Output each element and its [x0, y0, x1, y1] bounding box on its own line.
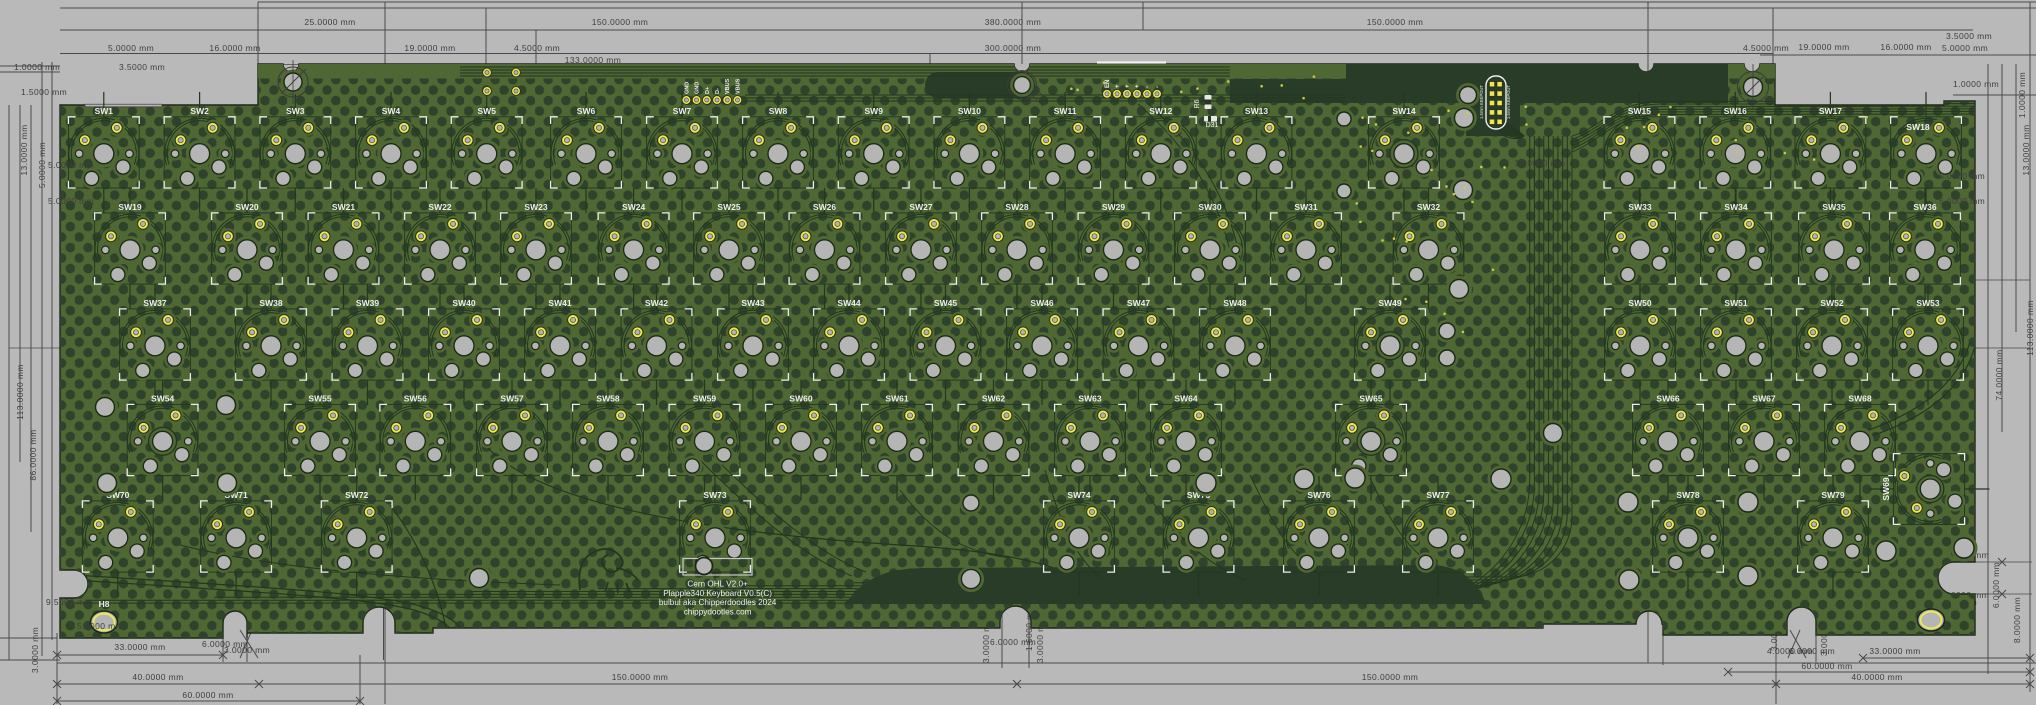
svg-text:1.5mm KEEPOUT: 1.5mm KEEPOUT — [1479, 85, 1484, 119]
svg-text:SW12: SW12 — [1149, 106, 1172, 116]
svg-text:13.0000 mm: 13.0000 mm — [19, 124, 29, 175]
svg-text:SW18: SW18 — [1906, 122, 1929, 132]
svg-text:3.5000 mm: 3.5000 mm — [119, 62, 165, 72]
svg-text:Cern OHL V2.0+: Cern OHL V2.0+ — [687, 579, 748, 588]
svg-text:SW10: SW10 — [958, 106, 981, 116]
svg-text:bulbul aka Chipperdoodles 2024: bulbul aka Chipperdoodles 2024 — [659, 598, 777, 607]
svg-text:5.0000 mm: 5.0000 mm — [48, 196, 94, 206]
svg-text:4.5000 mm: 4.5000 mm — [1743, 43, 1789, 53]
svg-text:SW6: SW6 — [577, 106, 596, 116]
svg-text:SW65: SW65 — [1359, 393, 1382, 403]
svg-text:SW79: SW79 — [1821, 490, 1844, 500]
svg-text:5.0000 mm: 5.0000 mm — [1942, 43, 1988, 53]
svg-text:6.0000 mm: 6.0000 mm — [1991, 562, 2001, 608]
svg-text:1.0000 mm: 1.0000 mm — [2017, 72, 2027, 118]
svg-text:3.0000 mm: 3.0000 mm — [30, 627, 40, 673]
svg-text:GND: GND — [695, 82, 701, 94]
svg-text:SW24: SW24 — [622, 202, 645, 212]
svg-text:SW39: SW39 — [356, 298, 379, 308]
svg-text:SW5: SW5 — [477, 106, 496, 116]
svg-text:R6: R6 — [1194, 99, 1201, 108]
svg-text:SW45: SW45 — [934, 298, 957, 308]
svg-text:SW78: SW78 — [1676, 490, 1699, 500]
svg-text:-: - — [1155, 86, 1161, 88]
svg-text:SW32: SW32 — [1417, 202, 1440, 212]
svg-text:4.5000 mm: 4.5000 mm — [514, 43, 560, 53]
svg-text:SW51: SW51 — [1724, 298, 1747, 308]
svg-text:EN: EN — [1105, 80, 1111, 88]
svg-text:9.5000 mm: 9.5000 mm — [46, 597, 92, 607]
svg-text:SW64: SW64 — [1174, 393, 1197, 403]
svg-text:SW57: SW57 — [500, 393, 523, 403]
svg-text:5.0000 mm: 5.0000 mm — [77, 621, 123, 631]
svg-text:SW27: SW27 — [909, 202, 932, 212]
svg-text:SW52: SW52 — [1820, 298, 1843, 308]
svg-text:SW69: SW69 — [1881, 477, 1891, 500]
svg-text:60.0000 mm: 60.0000 mm — [1801, 661, 1852, 671]
svg-text:SW28: SW28 — [1005, 202, 1028, 212]
svg-text:SW49: SW49 — [1378, 298, 1401, 308]
svg-text:1.5000 mm: 1.5000 mm — [21, 87, 67, 97]
svg-text:SW15: SW15 — [1628, 106, 1651, 116]
svg-text:60.0000 mm: 60.0000 mm — [182, 690, 233, 700]
svg-text:3.5000 mm: 3.5000 mm — [1946, 31, 1992, 41]
svg-text:SW67: SW67 — [1752, 393, 1775, 403]
svg-text:SW26: SW26 — [813, 202, 836, 212]
svg-text:16.0000 mm: 16.0000 mm — [1880, 42, 1931, 52]
svg-text:Plapple340 Keyboard V0.5(C): Plapple340 Keyboard V0.5(C) — [663, 589, 772, 598]
svg-text:+: + — [1135, 84, 1141, 88]
svg-text:SW7: SW7 — [673, 106, 692, 116]
svg-text:SW41: SW41 — [548, 298, 571, 308]
svg-text:SW20: SW20 — [235, 202, 258, 212]
svg-text:SW4: SW4 — [382, 106, 401, 116]
svg-text:-: - — [1145, 86, 1151, 88]
svg-text:19.0000 mm: 19.0000 mm — [1798, 42, 1849, 52]
svg-text:5.0000 mm: 5.0000 mm — [108, 43, 154, 53]
svg-text:16.0000 mm: 16.0000 mm — [209, 43, 260, 53]
svg-text:1.0000 mm: 1.0000 mm — [14, 62, 60, 72]
svg-text:SW25: SW25 — [717, 202, 740, 212]
svg-text:chippydootles.com: chippydootles.com — [684, 607, 752, 616]
svg-text:SW59: SW59 — [693, 393, 716, 403]
svg-text:SW47: SW47 — [1127, 298, 1150, 308]
svg-text:SW60: SW60 — [789, 393, 812, 403]
svg-text:5.0000 mm: 5.0000 mm — [37, 142, 47, 188]
svg-text:SW68: SW68 — [1848, 393, 1871, 403]
svg-text:VBUS: VBUS — [725, 78, 731, 94]
svg-text:SW13: SW13 — [1245, 106, 1268, 116]
svg-text:SW55: SW55 — [308, 393, 331, 403]
svg-text:VBUS: VBUS — [735, 78, 741, 94]
svg-text:SW29: SW29 — [1102, 202, 1125, 212]
svg-text:SW9: SW9 — [864, 106, 883, 116]
svg-text:SW11: SW11 — [1054, 106, 1077, 116]
svg-text:SW63: SW63 — [1078, 393, 1101, 403]
svg-text:SW17: SW17 — [1819, 106, 1842, 116]
svg-text:25.0000 mm: 25.0000 mm — [304, 17, 355, 27]
svg-text:SW23: SW23 — [524, 202, 547, 212]
svg-text:SW42: SW42 — [645, 298, 668, 308]
svg-text:150.0000 mm: 150.0000 mm — [1362, 672, 1418, 682]
svg-text:SW44: SW44 — [837, 298, 860, 308]
svg-text:SW36: SW36 — [1913, 202, 1936, 212]
svg-text:SW56: SW56 — [404, 393, 427, 403]
svg-text:D+: D+ — [705, 87, 711, 94]
svg-text:SW34: SW34 — [1724, 202, 1747, 212]
svg-text:SW62: SW62 — [982, 393, 1005, 403]
svg-text:H8: H8 — [99, 599, 110, 609]
svg-text:SW38: SW38 — [259, 298, 282, 308]
svg-text:SW8: SW8 — [769, 106, 788, 116]
svg-text:SW58: SW58 — [596, 393, 619, 403]
svg-text:113.0000 mm: 113.0000 mm — [2025, 300, 2035, 356]
svg-text:SW37: SW37 — [143, 298, 166, 308]
svg-text:D31: D31 — [1206, 122, 1219, 129]
svg-text:GND: GND — [684, 82, 690, 94]
svg-text:SW21: SW21 — [332, 202, 355, 212]
svg-text:SW54: SW54 — [151, 393, 174, 403]
svg-text:5.0000 mm: 5.0000 mm — [1939, 171, 1985, 181]
svg-text:SW31: SW31 — [1294, 202, 1317, 212]
svg-text:300.0000 mm: 300.0000 mm — [985, 43, 1041, 53]
svg-text:86.0000 mm: 86.0000 mm — [28, 429, 38, 480]
svg-text:19.0000 mm: 19.0000 mm — [1514, 158, 1565, 168]
svg-text:13.0000 mm: 13.0000 mm — [2021, 124, 2031, 175]
svg-text:SW77: SW77 — [1426, 490, 1449, 500]
svg-text:+: + — [1115, 84, 1121, 88]
svg-text:SW1: SW1 — [95, 106, 114, 116]
svg-text:SW61: SW61 — [885, 393, 908, 403]
svg-text:SW40: SW40 — [452, 298, 475, 308]
svg-text:SW33: SW33 — [1628, 202, 1651, 212]
svg-text:40.0000 mm: 40.0000 mm — [1851, 672, 1902, 682]
svg-text:19.0000 mm: 19.0000 mm — [404, 43, 455, 53]
svg-text:SW76: SW76 — [1307, 490, 1330, 500]
svg-text:3.0000 mm: 3.0000 mm — [224, 645, 270, 655]
svg-text:SW53: SW53 — [1916, 298, 1939, 308]
svg-text:1.0000 mm: 1.0000 mm — [1953, 79, 1999, 89]
svg-text:1.5mm KEEPOUT: 1.5mm KEEPOUT — [1506, 85, 1511, 119]
svg-text:40.0000 mm: 40.0000 mm — [132, 672, 183, 682]
svg-text:SW30: SW30 — [1198, 202, 1221, 212]
svg-text:+: + — [1125, 84, 1131, 88]
svg-text:SW66: SW66 — [1656, 393, 1679, 403]
svg-text:SW16: SW16 — [1724, 106, 1747, 116]
svg-text:74.0000 mm: 74.0000 mm — [1994, 349, 2004, 400]
svg-text:150.0000 mm: 150.0000 mm — [1367, 17, 1423, 27]
svg-text:SW74: SW74 — [1067, 490, 1090, 500]
svg-text:33.0000 mm: 33.0000 mm — [114, 642, 165, 652]
svg-text:8.0000 mm: 8.0000 mm — [2012, 597, 2022, 643]
svg-text:5.0000 mm: 5.0000 mm — [48, 160, 94, 170]
svg-text:SW50: SW50 — [1628, 298, 1651, 308]
svg-text:150.0000 mm: 150.0000 mm — [592, 17, 648, 27]
svg-text:SW72: SW72 — [345, 490, 368, 500]
svg-text:SW73: SW73 — [703, 490, 726, 500]
svg-text:SW19: SW19 — [118, 202, 141, 212]
svg-text:SW43: SW43 — [741, 298, 764, 308]
svg-text:SW14: SW14 — [1392, 106, 1415, 116]
svg-text:150.0000 mm: 150.0000 mm — [612, 672, 668, 682]
svg-text:D-: D- — [715, 88, 721, 94]
svg-text:380.0000 mm: 380.0000 mm — [985, 17, 1041, 27]
svg-text:33.0000 mm: 33.0000 mm — [1869, 646, 1920, 656]
svg-text:SW48: SW48 — [1223, 298, 1246, 308]
svg-text:SW3: SW3 — [286, 106, 305, 116]
svg-text:113.0000 mm: 113.0000 mm — [15, 364, 25, 420]
svg-text:SW2: SW2 — [190, 106, 209, 116]
svg-text:SW46: SW46 — [1030, 298, 1053, 308]
svg-text:SW35: SW35 — [1822, 202, 1845, 212]
svg-text:5.0000 mm: 5.0000 mm — [1939, 196, 1985, 206]
svg-text:SW22: SW22 — [428, 202, 451, 212]
